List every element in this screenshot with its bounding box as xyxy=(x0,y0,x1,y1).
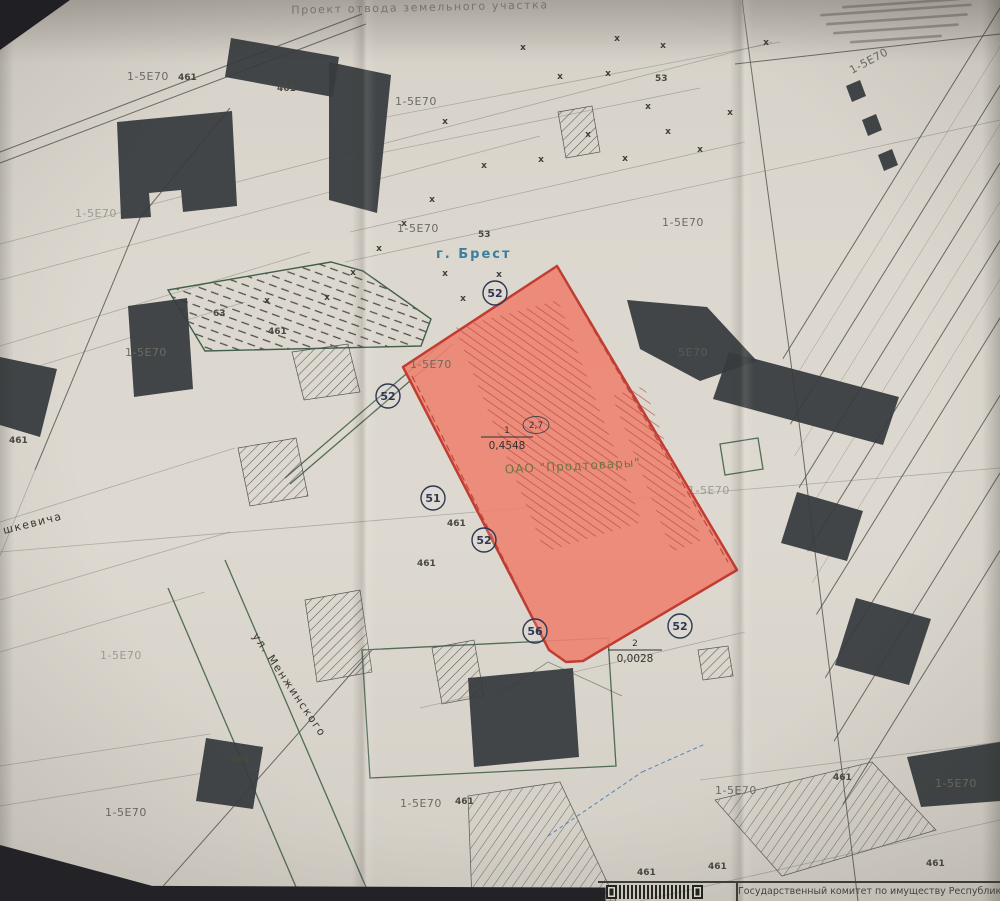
city-name-label: г. Брест xyxy=(436,247,512,262)
secondary-area-number: 2 xyxy=(632,639,638,649)
parcel-number-label: 461 xyxy=(268,327,287,337)
terrain-cross-mark: x xyxy=(697,145,703,155)
zone-code-label: 1-5Е70 xyxy=(127,70,169,83)
terrain-cross-mark: x xyxy=(614,34,620,44)
terrain-cross-mark: x xyxy=(557,72,563,82)
parcel-number-label: 53 xyxy=(655,74,668,84)
zone-code-label: 5Е70 xyxy=(678,346,708,359)
terrain-cross-mark: x xyxy=(481,161,487,171)
terrain-cross-mark: x xyxy=(622,154,628,164)
parcel-number-label: 461 xyxy=(277,84,296,94)
zone-code-label: 1-5Е70 xyxy=(397,222,439,235)
terrain-cross-mark: x xyxy=(727,108,733,118)
parcel-number-label: 461 xyxy=(926,859,945,869)
barcode xyxy=(606,885,703,899)
agency-stamp: Государственный комитет по имуществу Рес… xyxy=(736,883,1000,901)
parcel-number-label: 63 xyxy=(213,309,226,319)
terrain-cross-mark: x xyxy=(538,155,544,165)
area-note-value: 2,7 xyxy=(529,421,543,431)
zone-code-label: 1-5Е70 xyxy=(75,207,117,220)
boundary-point-number: 52 xyxy=(476,534,491,547)
zone-code-label: 1-5Е70 xyxy=(400,797,442,810)
terrain-cross-mark: x xyxy=(763,38,769,48)
terrain-cross-mark: x xyxy=(605,69,611,79)
boundary-point-number: 52 xyxy=(380,390,395,403)
terrain-cross-mark: x xyxy=(442,117,448,127)
parcel-number-label: 53 xyxy=(478,230,491,240)
terrain-cross-mark: x xyxy=(496,270,502,280)
zone-code-label: 1-5Е70 xyxy=(105,806,147,819)
zone-code-label: 1-5Е70 xyxy=(715,784,757,797)
terrain-cross-mark: x xyxy=(645,102,651,112)
terrain-cross-mark: x xyxy=(324,293,330,303)
secondary-area-area-value: 0,0028 xyxy=(617,653,654,665)
terrain-cross-mark: x xyxy=(429,195,435,205)
parcel-number-label: 461 xyxy=(231,755,250,765)
zone-code-label: 1-5Е70 xyxy=(100,649,142,662)
boundary-point-number: 52 xyxy=(672,620,687,633)
parcel-number-label: 461 xyxy=(455,797,474,807)
terrain-cross-mark: x xyxy=(660,41,666,51)
terrain-cross-mark: x xyxy=(264,296,270,306)
parcel-number-label: 461 xyxy=(833,773,852,783)
zone-code-label: 1-5Е70 xyxy=(935,777,977,790)
parcel-number-label: 461 xyxy=(708,862,727,872)
zone-code-label: 1-5Е70 xyxy=(410,358,452,371)
map-photo: xxxxxxxxxxxxxxxxxxxxxxxx1-5Е701-5Е701-5Е… xyxy=(0,0,1000,901)
zone-code-label: 1-5Е70 xyxy=(125,346,167,359)
parcel-number-label: 461 xyxy=(637,868,656,878)
zone-code-label: 1-5Е70 xyxy=(395,95,437,108)
main-area-number: 1 xyxy=(504,426,510,436)
barcode-bars xyxy=(619,885,690,899)
barcode-end-square xyxy=(606,885,617,899)
barcode-end-square xyxy=(692,885,703,899)
cadastral-map-canvas: xxxxxxxxxxxxxxxxxxxxxxxx1-5Е701-5Е701-5Е… xyxy=(0,0,1000,901)
boundary-point-number: 56 xyxy=(527,625,543,638)
fine-print-line xyxy=(826,13,968,25)
terrain-cross-mark: x xyxy=(376,244,382,254)
parcel-number-label: 461 xyxy=(447,519,466,529)
terrain-cross-mark: x xyxy=(460,294,466,304)
terrain-cross-mark: x xyxy=(520,43,526,53)
main-area-area-value: 0,4548 xyxy=(489,440,526,452)
parcel-number-label: 461 xyxy=(9,436,28,446)
boundary-point-number: 52 xyxy=(487,287,502,300)
terrain-cross-mark: x xyxy=(585,130,591,140)
street-name-label: шкевича xyxy=(2,510,64,537)
zone-code-label: 1-5Е70 xyxy=(688,484,730,497)
terrain-cross-mark: x xyxy=(442,269,448,279)
fine-print-line xyxy=(833,23,959,34)
parcel-number-label: 461 xyxy=(178,73,197,83)
boundary-point-number: 51 xyxy=(425,492,440,505)
parcel-number-label: 461 xyxy=(417,559,436,569)
terrain-cross-mark: x xyxy=(350,268,356,278)
terrain-cross-mark: x xyxy=(665,127,671,137)
zone-code-label: 1-5Е70 xyxy=(662,216,704,229)
